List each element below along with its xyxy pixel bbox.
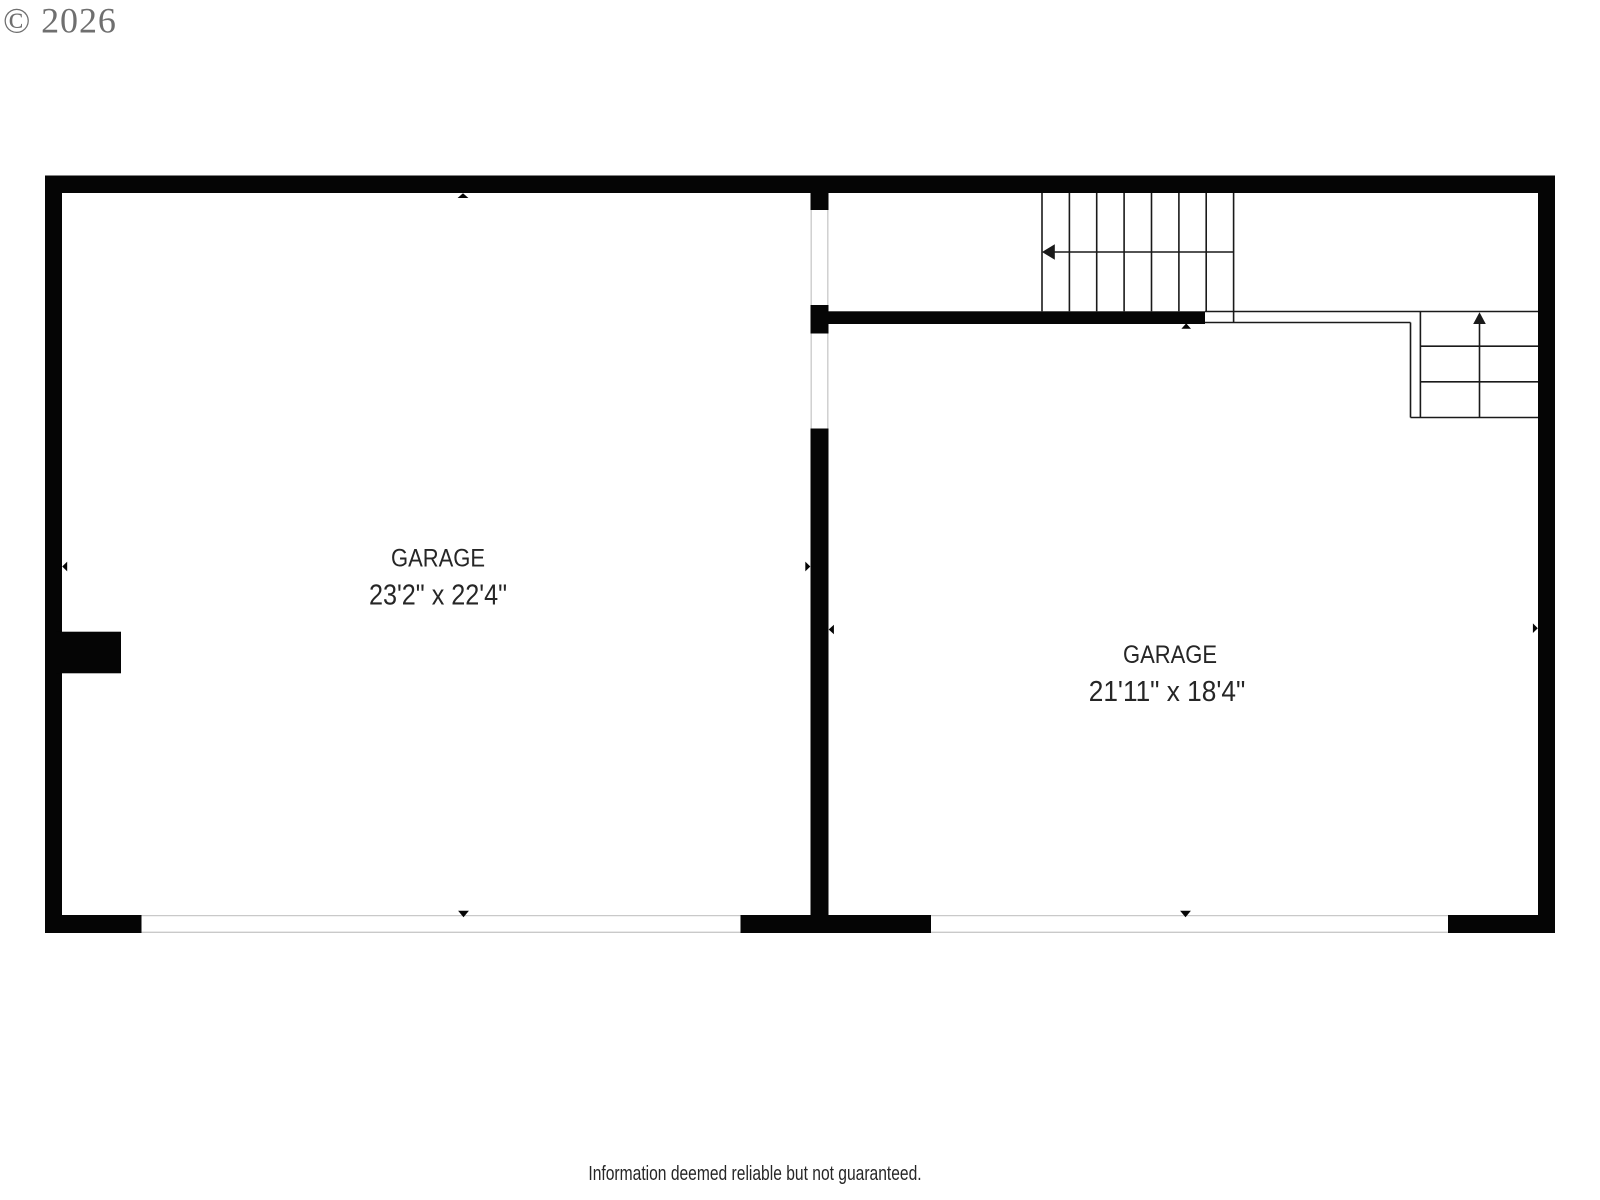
svg-text:21'11" x 18'4": 21'11" x 18'4" <box>1089 675 1246 708</box>
svg-text:Information deemed reliable bu: Information deemed reliable but not guar… <box>588 1162 921 1184</box>
svg-text:© 2026: © 2026 <box>3 1 117 41</box>
svg-text:GARAGE: GARAGE <box>1123 641 1217 669</box>
svg-text:GARAGE: GARAGE <box>391 544 485 572</box>
svg-text:23'2" x 22'4": 23'2" x 22'4" <box>369 578 507 611</box>
